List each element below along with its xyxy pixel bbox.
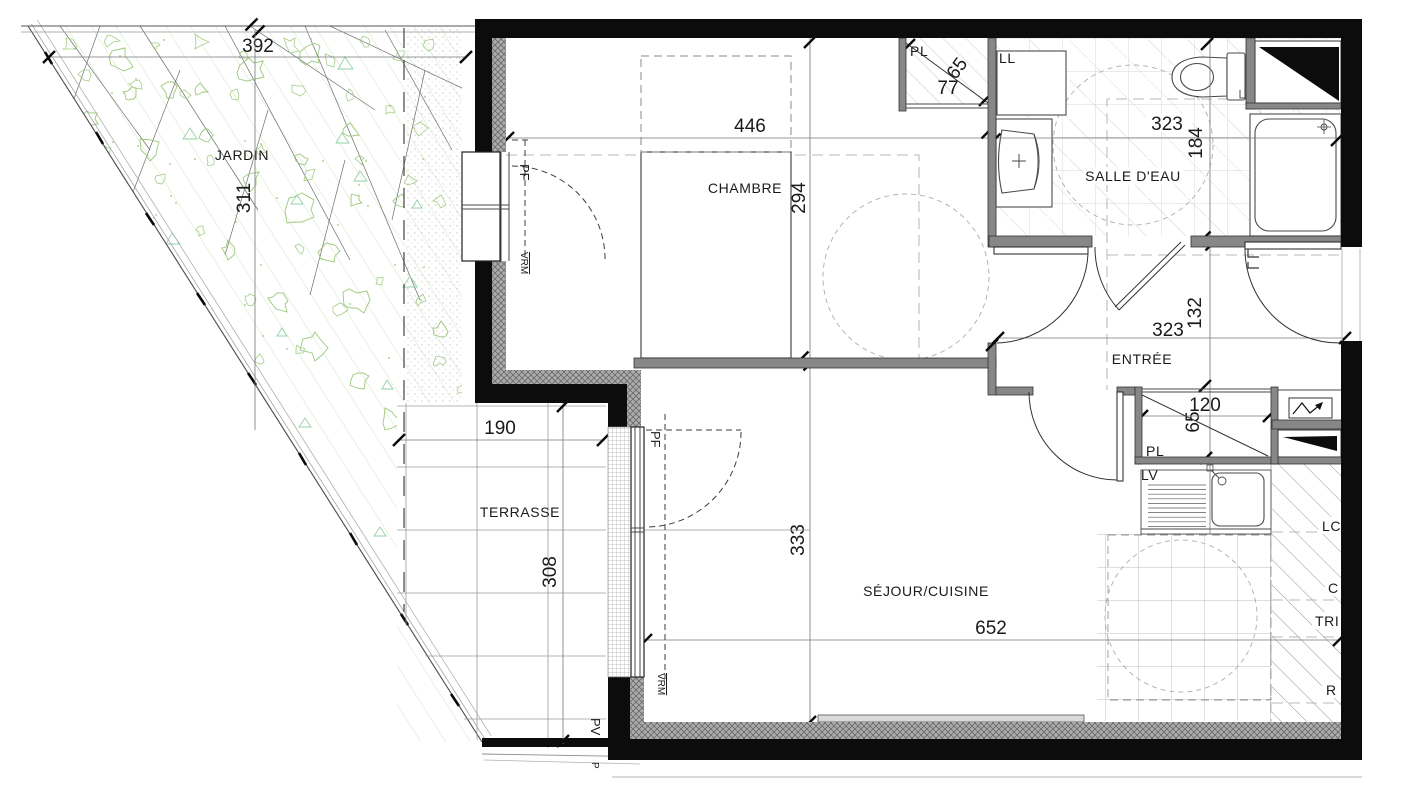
svg-text:PF: PF	[517, 164, 532, 181]
svg-text:R: R	[1326, 682, 1337, 698]
svg-text:CHAMBRE: CHAMBRE	[708, 180, 782, 196]
svg-text:652: 652	[975, 618, 1007, 639]
svg-text:ENTRÉE: ENTRÉE	[1112, 351, 1172, 367]
svg-text:C: C	[1328, 580, 1339, 596]
svg-text:VRM: VRM	[518, 252, 529, 274]
svg-text:184: 184	[1186, 127, 1207, 159]
svg-text:132: 132	[1185, 297, 1206, 329]
svg-text:LC: LC	[1322, 518, 1341, 534]
svg-text:TRI: TRI	[1315, 613, 1339, 629]
svg-text:VRM: VRM	[655, 673, 666, 695]
svg-text:PF: PF	[648, 431, 663, 448]
svg-text:LL: LL	[999, 50, 1016, 66]
svg-text:TERRASSE: TERRASSE	[480, 504, 560, 520]
svg-text:294: 294	[789, 182, 810, 214]
svg-text:65: 65	[1183, 411, 1204, 432]
svg-text:PV: PV	[588, 718, 603, 736]
svg-text:333: 333	[788, 524, 809, 556]
svg-text:PL: PL	[910, 43, 928, 59]
svg-text:JARDIN: JARDIN	[215, 147, 269, 163]
svg-text:LV: LV	[1141, 467, 1158, 483]
svg-text:P: P	[589, 762, 600, 769]
svg-text:308: 308	[540, 556, 561, 588]
svg-text:446: 446	[734, 116, 766, 137]
svg-text:SÉJOUR/CUISINE: SÉJOUR/CUISINE	[863, 583, 989, 599]
svg-text:392: 392	[242, 36, 274, 57]
svg-text:190: 190	[484, 418, 516, 439]
svg-text:323: 323	[1151, 114, 1183, 135]
svg-text:311: 311	[234, 183, 255, 213]
svg-text:SALLE D'EAU: SALLE D'EAU	[1085, 168, 1181, 184]
